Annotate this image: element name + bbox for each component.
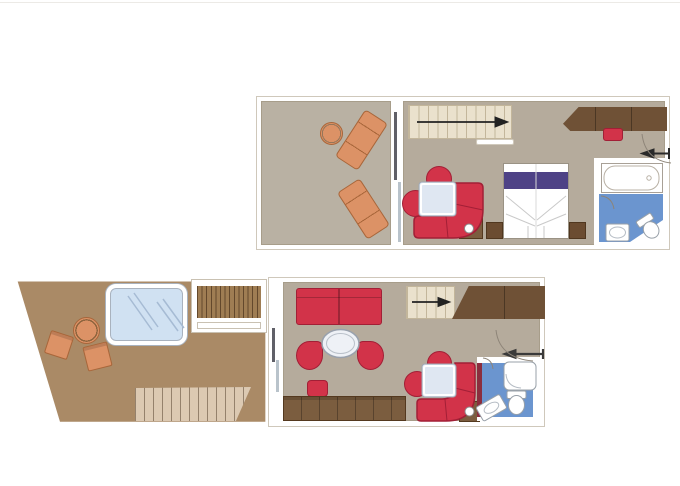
wardrobe-seam [631, 107, 632, 131]
sliding-door-panel [398, 182, 401, 242]
upper-bathroom-floor [599, 194, 663, 242]
sliding-door-panel [272, 328, 275, 362]
stair-landing [476, 139, 514, 145]
nightstand [486, 222, 503, 239]
top-hairline [0, 2, 680, 3]
sliding-door-panel [394, 112, 397, 180]
wardrobe-seam [595, 107, 596, 131]
living-sofa [296, 288, 382, 325]
wardrobe-seam [504, 286, 505, 319]
media-cabinet [459, 217, 483, 239]
upper-divider-wall [391, 101, 403, 245]
round-chair [426, 166, 452, 192]
wide-deck-steps [135, 387, 251, 421]
desk-sideboard [283, 396, 406, 421]
tub-chair [296, 341, 323, 370]
deck-stairs-sill [197, 322, 261, 329]
deck-stairs [197, 286, 261, 318]
round-chair [427, 351, 452, 376]
living-stool [307, 380, 328, 397]
terrace-round-table [73, 317, 100, 344]
round-chair [404, 371, 430, 397]
balcony-round-table [320, 122, 343, 145]
sliding-door-panel [276, 360, 279, 392]
nightstand [569, 222, 586, 239]
whirlpool-hot-tub [106, 284, 187, 345]
bathtub-deck [601, 163, 663, 193]
tub-chair [357, 341, 384, 370]
round-chair [402, 190, 429, 217]
upper-stool [603, 128, 623, 141]
upper-staircase [408, 105, 512, 139]
lower-staircase [406, 286, 455, 319]
floor-plan-canvas [0, 0, 680, 486]
bed-runner [504, 172, 568, 189]
lower-bathroom-floor [482, 363, 533, 417]
